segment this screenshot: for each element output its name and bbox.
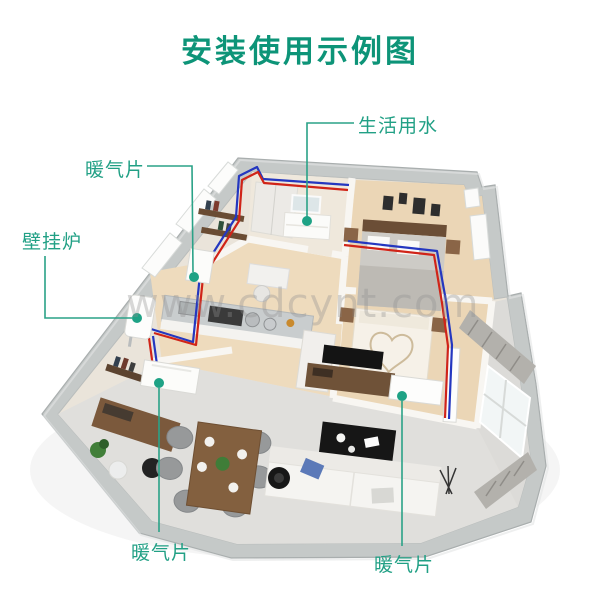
- installation-example-diagram: 安装使用示例图: [0, 0, 600, 611]
- callout-dot-radiator-bottom-right: [397, 391, 407, 401]
- label-wall-boiler: 壁挂炉: [22, 227, 82, 254]
- side-table: [109, 461, 127, 479]
- callout-dot-domestic-water: [302, 216, 312, 226]
- label-radiator-upper-left: 暖气片: [85, 155, 145, 182]
- floorplan-svg: [0, 0, 600, 611]
- callout-dot-radiator-upper-left: [189, 272, 199, 282]
- label-radiator-bottom-right: 暖气片: [374, 550, 434, 577]
- callout-dot-wall-boiler: [132, 313, 142, 323]
- label-radiator-bottom-left: 暖气片: [131, 538, 191, 565]
- nightstand: [339, 307, 354, 322]
- floorplan-illustration: www.cdcynt.com 生活用水 暖气片 壁挂炉 暖气片 暖气片: [0, 0, 600, 611]
- pillow-gray: [371, 487, 394, 503]
- bathroom-mirror: [291, 195, 320, 213]
- nightstand: [344, 228, 359, 243]
- callout-line-wall-boiler: [45, 256, 132, 318]
- label-domestic-water: 生活用水: [358, 111, 438, 138]
- callout-dot-radiator-bottom-left: [154, 378, 164, 388]
- nightstand: [446, 240, 461, 255]
